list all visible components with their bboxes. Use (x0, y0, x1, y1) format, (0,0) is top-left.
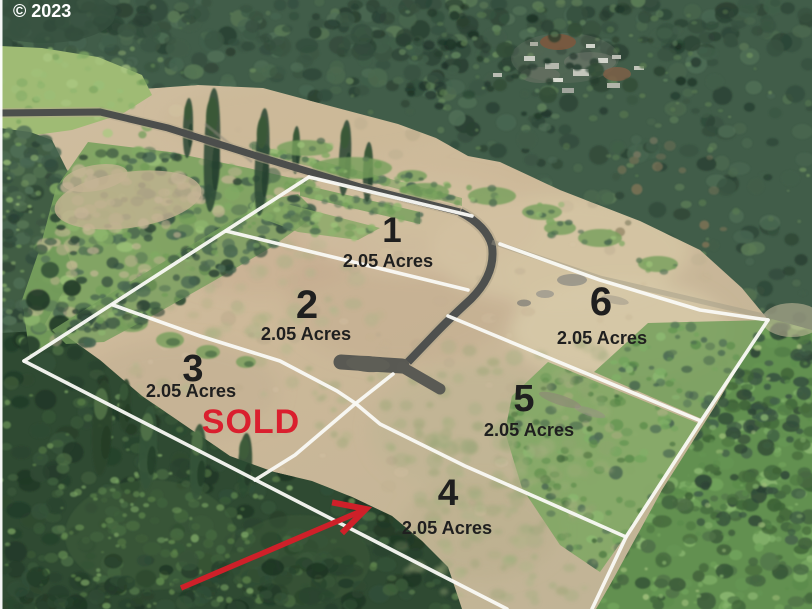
svg-text:1: 1 (382, 211, 401, 250)
svg-text:2.05 Acres: 2.05 Acres (557, 328, 647, 348)
svg-text:4: 4 (438, 472, 459, 513)
svg-text:2.05 Acres: 2.05 Acres (146, 381, 236, 401)
svg-text:2.05 Acres: 2.05 Acres (402, 518, 492, 538)
svg-text:2.05 Acres: 2.05 Acres (343, 251, 433, 271)
svg-text:2: 2 (296, 283, 318, 327)
svg-text:5: 5 (513, 378, 534, 420)
svg-text:2.05 Acres: 2.05 Acres (484, 420, 574, 440)
svg-text:6: 6 (590, 280, 612, 324)
svg-text:© 2023: © 2023 (13, 1, 71, 21)
svg-text:SOLD: SOLD (202, 403, 300, 441)
svg-text:2.05 Acres: 2.05 Acres (261, 324, 351, 344)
